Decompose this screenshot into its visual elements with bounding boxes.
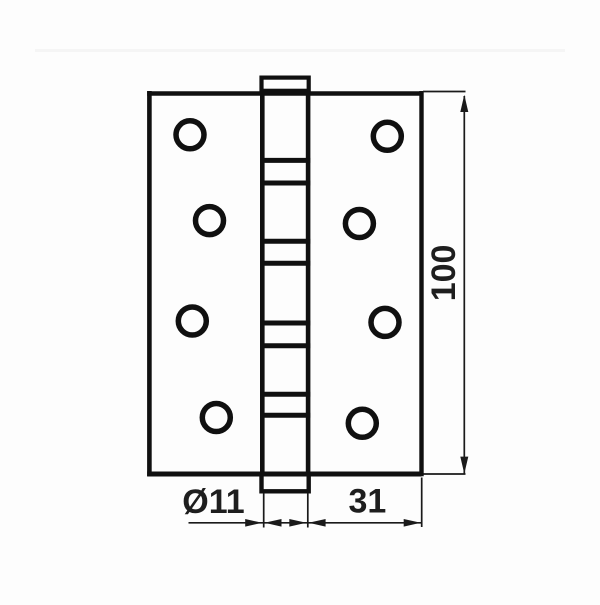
svg-text:31: 31: [348, 483, 386, 521]
svg-text:100: 100: [425, 245, 463, 302]
svg-text:Ø11: Ø11: [182, 483, 244, 521]
